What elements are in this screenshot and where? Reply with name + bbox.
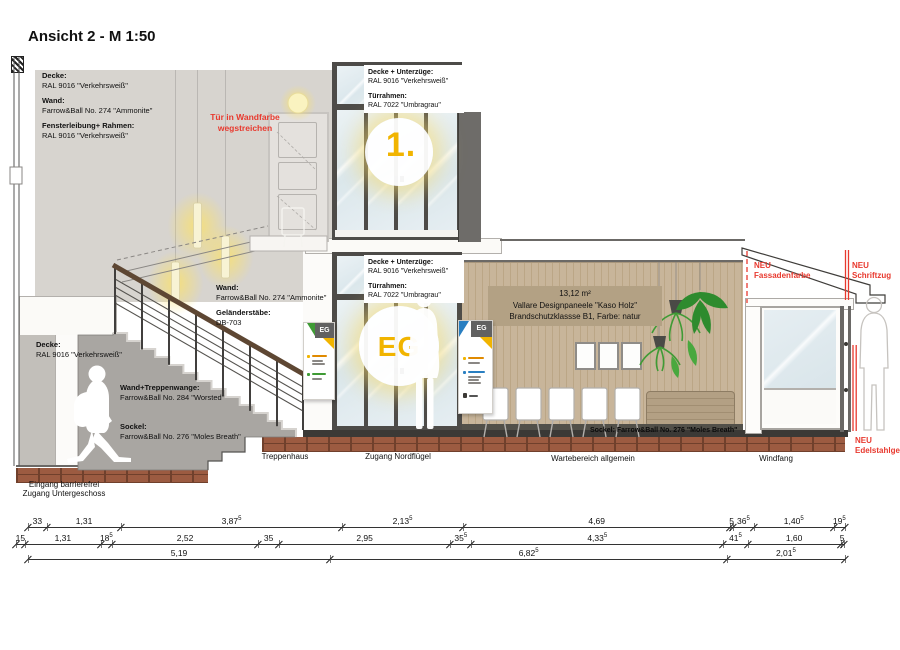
red-note-gelaender: NEU Edelstahlgeländer: [855, 436, 900, 457]
dimension-value: 5,19: [147, 548, 211, 558]
dimension-value: 1,31: [52, 516, 116, 526]
red-note-fassade: NEU Fassadenfarbe: [754, 261, 810, 282]
red-note-schriftzug: NEU Schriftzug: [852, 261, 891, 282]
drawing-title: Ansicht 2 - M 1:50: [28, 28, 156, 45]
dimension-value: 2,015: [754, 548, 818, 558]
dimension-value: 3,875: [200, 516, 264, 526]
dimension-value: 4,69: [565, 516, 629, 526]
dimension-value: 2,52: [153, 533, 217, 543]
red-note-tuer: Tür in Wandfarbe wegstreichen: [203, 112, 287, 134]
dimension-value: 2,135: [371, 516, 435, 526]
dimension-line: [16, 544, 844, 545]
elevation-sheet: Ansicht 2 - M 1:50: [0, 0, 900, 650]
dimension-value: 2,95: [333, 533, 397, 543]
dimension-value: 35: [237, 533, 301, 543]
dimension-rows: 331,313,8752,1354,6953651,405195151,3118…: [0, 0, 900, 650]
dimension-line: [28, 559, 845, 560]
dimension-value: 355: [429, 533, 493, 543]
dimension-value: 6,825: [497, 548, 561, 558]
dimension-line: [28, 527, 845, 528]
dimension-value: 415: [703, 533, 767, 543]
dimension-value: 185: [74, 533, 138, 543]
dimension-value: 5: [810, 533, 874, 543]
dimension-value: 195: [807, 516, 871, 526]
dimension-value: 4,335: [565, 533, 629, 543]
